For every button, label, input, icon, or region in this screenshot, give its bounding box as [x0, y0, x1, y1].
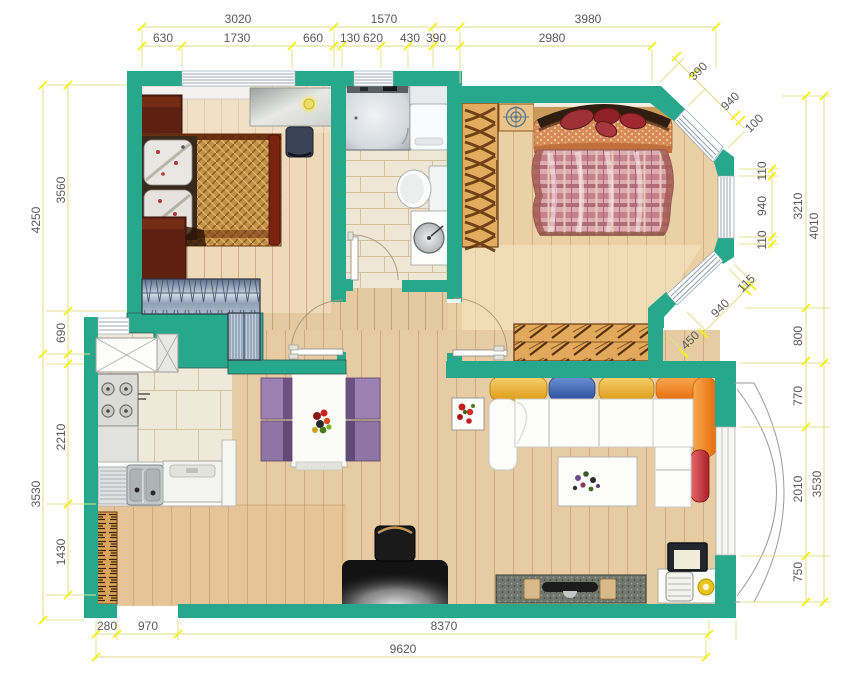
svg-text:3980: 3980 [575, 12, 602, 26]
svg-text:2210: 2210 [54, 423, 68, 450]
svg-text:4250: 4250 [29, 206, 43, 233]
svg-text:1570: 1570 [371, 12, 398, 26]
svg-text:620: 620 [363, 31, 383, 45]
svg-text:9620: 9620 [390, 642, 417, 656]
svg-text:2010: 2010 [791, 475, 805, 502]
svg-text:1730: 1730 [224, 31, 251, 45]
svg-text:3210: 3210 [791, 192, 805, 219]
svg-text:280: 280 [97, 619, 117, 633]
svg-text:4010: 4010 [807, 212, 821, 239]
svg-text:940: 940 [755, 196, 769, 216]
svg-text:800: 800 [791, 326, 805, 346]
svg-text:110: 110 [755, 161, 769, 180]
svg-text:660: 660 [303, 31, 323, 45]
svg-text:2980: 2980 [539, 31, 566, 45]
svg-text:110: 110 [755, 230, 769, 249]
svg-text:750: 750 [791, 562, 805, 582]
svg-text:8370: 8370 [431, 619, 458, 633]
svg-text:3530: 3530 [29, 480, 43, 507]
svg-text:1430: 1430 [54, 538, 68, 565]
svg-text:3560: 3560 [54, 176, 68, 203]
svg-text:390: 390 [426, 31, 446, 45]
svg-text:3020: 3020 [225, 12, 252, 26]
svg-text:430: 430 [400, 31, 420, 45]
svg-text:630: 630 [153, 31, 173, 45]
svg-text:770: 770 [791, 386, 805, 406]
svg-text:690: 690 [54, 323, 68, 343]
svg-text:130: 130 [340, 31, 360, 45]
svg-text:970: 970 [138, 619, 158, 633]
svg-text:3530: 3530 [810, 470, 824, 497]
